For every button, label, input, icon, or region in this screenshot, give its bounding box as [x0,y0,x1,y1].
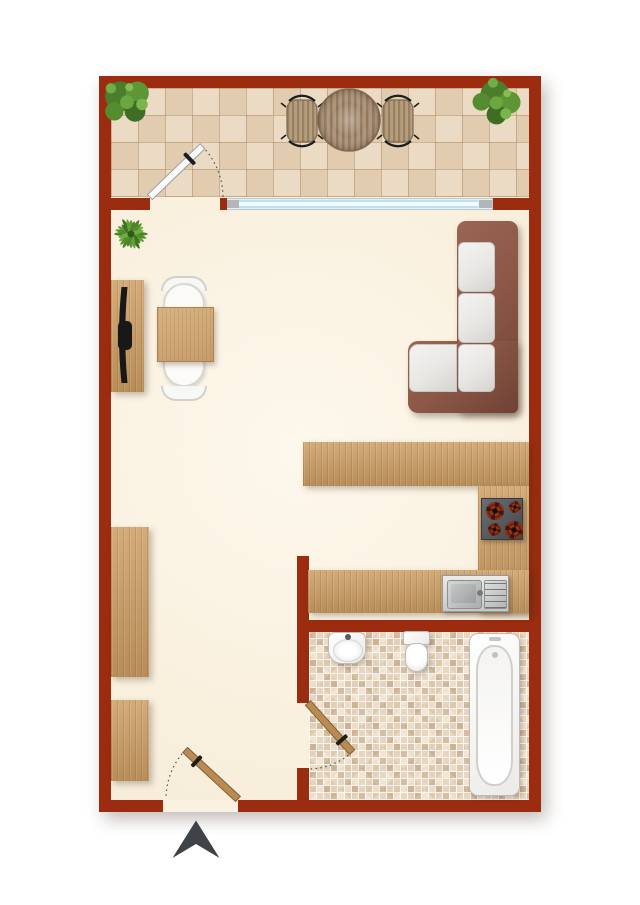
patio-chair-right [377,96,419,147]
balcony-door-swing-arc [203,147,224,198]
entrance-door [180,745,242,804]
patio-table [318,89,380,151]
entrance-arrow-icon [173,821,220,859]
bathroom-door [303,698,357,756]
entrance-door-swing-arc [166,750,185,799]
tv [118,287,132,383]
balcony-door [145,141,208,203]
floor-plan [0,0,640,905]
patio-chair-left [281,96,323,147]
potted-plant-right [468,74,525,130]
potted-plant-left [105,81,149,121]
palm-plant [114,218,148,250]
plan-overlay [0,0,640,905]
bathroom-door-swing-arc [308,752,352,769]
